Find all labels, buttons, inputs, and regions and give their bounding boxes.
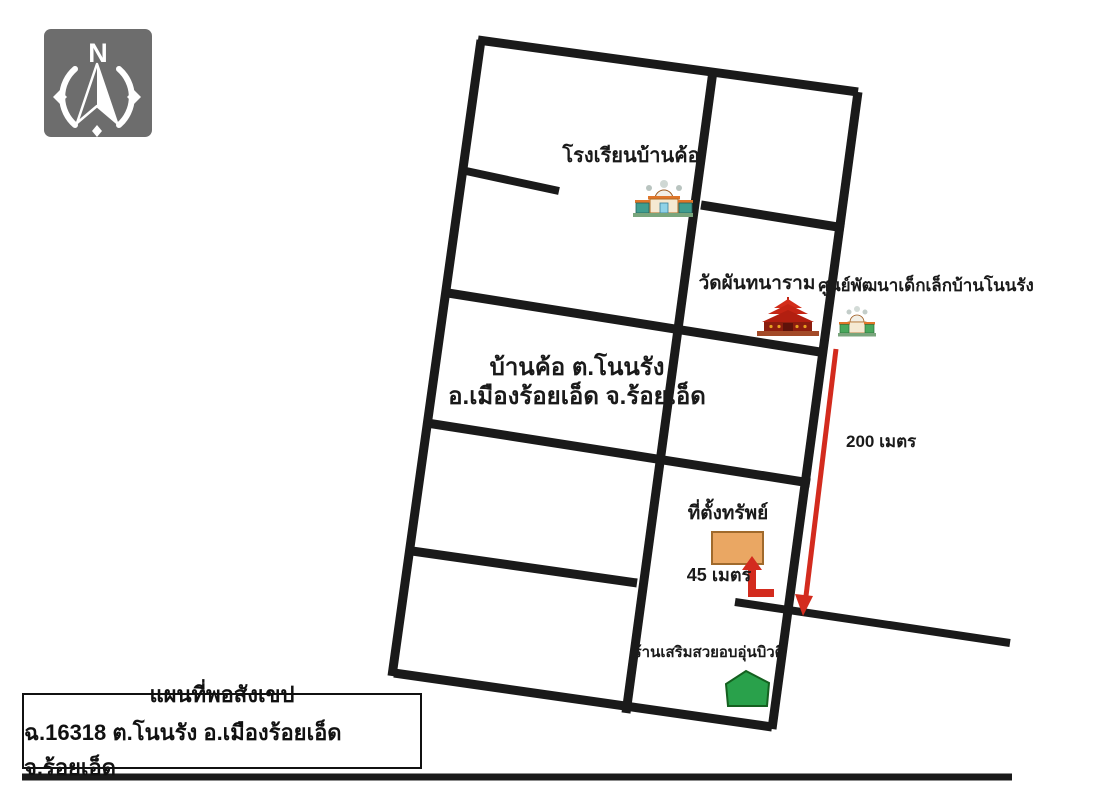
distance-200m-label: 200 เมตร <box>846 433 916 452</box>
property-label: ที่ตั้งทรัพย์ <box>688 504 769 525</box>
road-top-boundary <box>478 40 858 92</box>
road-stub <box>466 171 559 191</box>
village-label-line2: อ.เมืองร้อยเอ็ด จ.ร้อยเอ็ด <box>448 384 706 410</box>
temple-icon <box>757 297 819 336</box>
compass-rose-icon: N <box>44 29 152 137</box>
road-diagonal <box>735 602 1010 643</box>
childcare-label: ศูนย์พัฒนาเด็กเล็กบ้านโนนรัง <box>818 277 1034 296</box>
road-bottom-boundary <box>394 673 772 727</box>
childcare-building-icon <box>838 306 876 337</box>
map-canvas: N <box>0 0 1103 800</box>
school-building-icon <box>633 180 693 217</box>
road-right-vertical <box>772 92 858 729</box>
temple-label: วัดผันทนาราม <box>699 274 816 295</box>
road-h3 <box>427 423 810 483</box>
school-label: โรงเรียนบ้านค้อ <box>562 145 699 167</box>
road-h1 <box>701 205 844 228</box>
map-title-line1: แผนที่พอสังเขป <box>149 677 294 712</box>
map-title-line2: ฉ.16318 ต.โนนรัง อ.เมืองร้อยเอ็ด จ.ร้อยเ… <box>24 715 420 785</box>
property-marker <box>712 532 763 564</box>
salon-house-icon <box>726 671 769 706</box>
road-h4 <box>412 551 637 583</box>
road-left-boundary <box>392 40 481 676</box>
map-title-box: แผนที่พอสังเขป ฉ.16318 ต.โนนรัง อ.เมืองร… <box>22 693 422 769</box>
village-label-line1: บ้านค้อ ต.โนนรัง <box>490 355 665 381</box>
salon-label: ร้านเสริมสวยอบอุ่นบิวตี้ <box>634 645 785 662</box>
distance-45m-label: 45 เมตร <box>687 566 751 586</box>
